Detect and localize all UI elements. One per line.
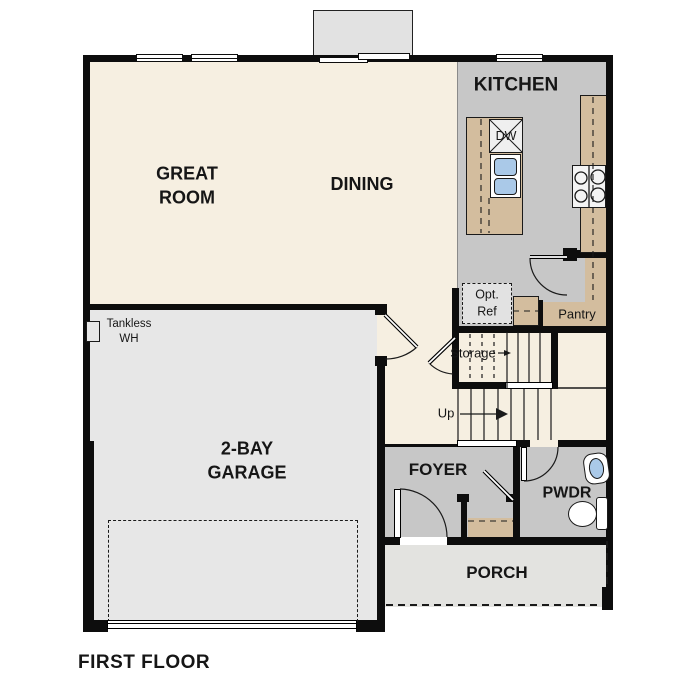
great-room-label-line1: GREAT <box>156 162 218 186</box>
pantry-walk-floor <box>543 258 585 302</box>
floor-plan: GREAT ROOM DINING KITCHEN 2-BAY GARAGE F… <box>0 0 687 687</box>
wall-pantry-top-jamb <box>563 248 577 261</box>
garage-door-line <box>108 623 356 624</box>
kitchen-sink-basin <box>494 158 517 176</box>
up-label: Up <box>438 404 455 421</box>
opt-ref-label: Opt. Ref <box>475 287 499 320</box>
toilet-bowl <box>568 501 597 527</box>
wall-below-pantry <box>452 326 613 333</box>
wall-foyer-bottom-left <box>385 537 400 545</box>
wall-closet-left <box>461 498 467 537</box>
powder-door-panel <box>521 447 527 481</box>
wall-porch-corner <box>602 587 613 610</box>
stove <box>572 165 606 208</box>
tankless-wh-label: Tankless WH <box>107 317 152 347</box>
wall-garage-bottom-left <box>83 620 108 632</box>
garage-label: 2-BAY GARAGE <box>207 437 286 485</box>
great-room-label: GREAT ROOM <box>156 162 218 210</box>
garage-door <box>107 620 357 629</box>
garage-door-dashed-outline <box>108 520 358 622</box>
wall-left-jog <box>90 441 94 632</box>
window-glass-line <box>497 58 542 59</box>
wall-closet-jamb-right <box>506 494 520 502</box>
tankless-wh-label-line1: Tankless <box>107 317 152 332</box>
storage-label: Storage <box>450 344 496 361</box>
wall-storage-bottom <box>452 382 508 389</box>
front-door-panel <box>394 489 401 538</box>
garage-label-line1: 2-BAY <box>207 437 286 461</box>
foyer-label: FOYER <box>409 459 468 481</box>
toilet-tank <box>596 497 608 530</box>
wall-garage-right-jamb-bottom <box>375 356 387 366</box>
bump-out <box>313 10 413 57</box>
wall-pwdr-closet <box>513 447 520 537</box>
plan-title: FIRST FLOOR <box>78 650 210 675</box>
pantry-label: Pantry <box>558 305 596 322</box>
porch-label: PORCH <box>466 562 527 584</box>
wall-garage-right <box>377 366 385 622</box>
tankless-water-heater <box>86 321 100 342</box>
dishwasher-label: DW <box>496 128 517 145</box>
window-glass-line <box>192 58 237 59</box>
window-glass-line <box>137 58 182 59</box>
opt-ref-label-line1: Opt. <box>475 287 499 304</box>
window <box>191 54 238 62</box>
dining-label: DINING <box>331 173 394 197</box>
great-room-dining-floor <box>90 61 458 304</box>
kitchen-dining-divider <box>457 62 458 288</box>
wall-kitchen-stairs <box>452 288 459 388</box>
wall-garage-bottom-right <box>356 620 385 632</box>
kitchen-sink-basin <box>494 178 517 195</box>
wall-foyer-bottom-right <box>447 537 613 545</box>
hallway-floor <box>385 304 458 447</box>
window <box>136 54 183 62</box>
tankless-wh-label-line2: WH <box>107 332 152 347</box>
wall-stairs-right <box>551 332 558 389</box>
closet-floor <box>468 518 514 537</box>
great-room-label-line2: ROOM <box>156 186 218 210</box>
wall-left <box>83 55 90 632</box>
opt-ref-label-line2: Ref <box>475 303 499 320</box>
wall-foyer-top-line <box>385 444 457 447</box>
sliding-door-panel <box>358 53 410 60</box>
window <box>496 54 543 62</box>
wall-garage-right-jamb-top <box>375 304 387 315</box>
garage-label-line2: GARAGE <box>207 461 286 485</box>
wall-pwdr-top-right <box>558 440 606 447</box>
pwdr-label: PWDR <box>543 482 592 503</box>
stair-bottom-band <box>457 440 517 447</box>
kitchen-cabinet <box>513 296 539 326</box>
wall-greatroom-garage <box>83 304 385 310</box>
kitchen-label: KITCHEN <box>474 72 558 97</box>
stair-landing-band <box>505 382 553 389</box>
garage-doorway-floor <box>377 313 385 358</box>
